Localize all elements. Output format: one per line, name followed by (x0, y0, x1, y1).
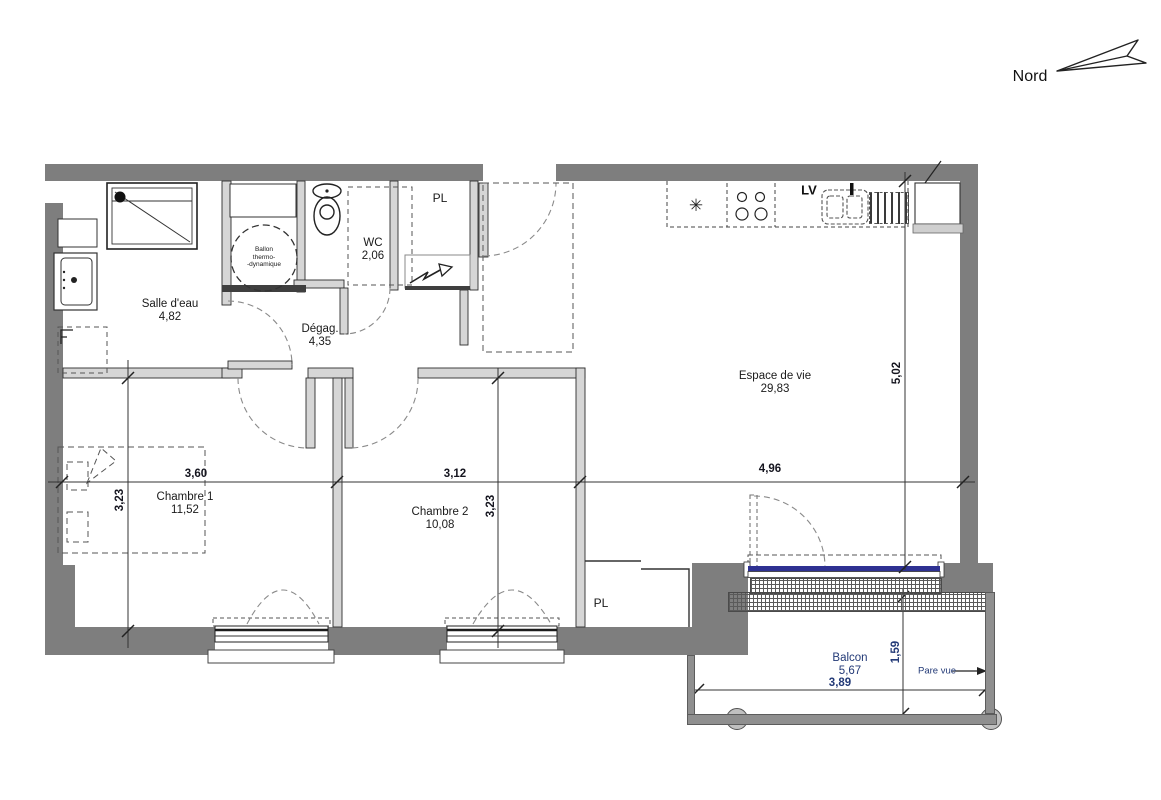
room-label-salle-deau: Salle d'eau 4,82 (142, 298, 199, 324)
window-chambre2 (440, 618, 564, 663)
window1-frame (215, 626, 328, 642)
dim-living-width: 4,96 (759, 463, 781, 475)
partition-bedrooms-top-2 (308, 368, 353, 378)
door-leaf-chambre1 (306, 378, 315, 448)
arc-entry-door (484, 183, 556, 256)
partition-heater-closet-right (297, 181, 305, 292)
door-leaf-salledeau (228, 361, 292, 369)
entry-box-bottom (405, 286, 470, 290)
wall-top-right (556, 164, 978, 181)
washing-machine-slot (58, 327, 107, 373)
room-name: Chambre 1 (157, 491, 214, 503)
room-label-balcon: Balcon 5,67 (832, 652, 867, 678)
kitchen-sink-icon (822, 183, 868, 224)
partition-bedrooms-top-1 (222, 368, 242, 378)
room-label-chambre1: Chambre 1 11,52 (157, 491, 214, 517)
room-area: 29,83 (739, 383, 811, 396)
window2-frame (447, 626, 557, 642)
water-heater-line3: -dynamique (247, 261, 281, 268)
door-leaves (228, 183, 488, 448)
room-area: 2,06 (362, 250, 384, 263)
balcony-edge-band (728, 592, 995, 612)
room-name: Chambre 2 (412, 506, 469, 518)
room-name: Balcon (832, 652, 867, 664)
partition-pl-right (470, 181, 478, 290)
balcony-bay-window (744, 555, 944, 578)
window2-sill (440, 650, 564, 663)
wall-niche-left (58, 219, 97, 247)
partition-salledeau-bottom (63, 368, 230, 378)
partition-bedrooms-top-3 (418, 368, 585, 378)
pare-vue-arrow (952, 667, 987, 675)
kitchen-drainer-icon (869, 192, 909, 224)
pare-vue-screen (985, 592, 995, 714)
dim-balcon-depth: 1,59 (890, 641, 902, 663)
hob-icon (736, 193, 767, 221)
room-area: 4,35 (301, 336, 338, 349)
arc-balcony-door (754, 496, 825, 567)
room-label-espace-de-vie: Espace de vie 29,83 (739, 370, 811, 396)
room-name: WC (363, 237, 382, 249)
door-leaf-wc (340, 288, 348, 334)
north-arrow-icon (1057, 40, 1146, 71)
dim-balcon-width: 3,89 (829, 677, 851, 689)
water-heater-line2: thermo- (253, 253, 275, 260)
window-chambre1 (208, 618, 334, 663)
partition-wc-right (390, 181, 398, 290)
north-label: Nord (1013, 68, 1048, 86)
arc-salledeau-door (228, 301, 292, 365)
partition-chambre1-chambre2 (333, 378, 342, 627)
fridge-icon: ✳ (689, 196, 703, 216)
toilet-icon (313, 184, 341, 235)
room-area: 4,82 (142, 311, 199, 324)
entry-zone-dashed (483, 183, 573, 352)
window1-sill (208, 650, 334, 663)
dim-chambre1-width: 3,60 (185, 468, 207, 480)
closet-hall-label: PL (433, 191, 448, 205)
room-area: 11,52 (157, 504, 214, 517)
wall-bottom-1 (45, 627, 215, 655)
room-name: Salle d'eau (142, 298, 199, 310)
arc-chambre1-door (238, 378, 308, 448)
dim-chambre1-depth: 3,23 (114, 489, 126, 511)
room-name: Dégag. (301, 323, 338, 335)
arc-chambre2-door (349, 378, 418, 448)
arc-wc-door (344, 288, 390, 334)
wall-bottom-2 (328, 627, 447, 655)
room-label-chambre2: Chambre 2 10,08 (412, 506, 469, 532)
dim-chambre2-width: 3,12 (444, 468, 466, 480)
door-swing-arcs (228, 183, 825, 624)
dim-living-depth: 5,02 (891, 362, 903, 384)
room-area: 10,08 (412, 519, 469, 532)
heater-closet-bottom-wall (222, 285, 306, 292)
washbasin-icon (54, 253, 97, 310)
dim-chambre2-depth: 3,23 (485, 495, 497, 517)
balcony-rail-left (687, 655, 695, 718)
pare-vue-label: Pare vue (918, 666, 956, 677)
wall-top-left (45, 164, 483, 181)
window2-dashed (445, 618, 559, 626)
wall-left-step (45, 565, 75, 627)
counter-return (913, 224, 963, 233)
water-heater-label: Ballon thermo- -dynamique (247, 246, 281, 269)
partition-chambre2-living (576, 368, 585, 627)
duct-niche (915, 183, 960, 224)
balcony-rail-bottom (687, 714, 997, 725)
window1-dashed (213, 618, 330, 626)
closet-bedroom-label: PL (594, 596, 609, 610)
dishwasher-label: LV (801, 183, 817, 198)
balcony-door-open-leaf (750, 495, 757, 567)
heater-shelf (230, 184, 296, 217)
room-name: Espace de vie (739, 370, 811, 382)
room-label-degagement: Dégag. 4,35 (301, 323, 338, 349)
sink-tap (850, 183, 854, 195)
door-leaf-chambre2 (345, 378, 353, 448)
water-heater-line1: Ballon (255, 246, 273, 253)
shower-icon (107, 183, 197, 249)
partition-entry (460, 290, 468, 345)
arc-window-chambre2 (473, 590, 551, 624)
wall-southeast-block (940, 563, 993, 592)
wc-dashed-zone (348, 187, 412, 285)
bay-dashed-outline (748, 555, 941, 567)
floor-plan: Nord Salle d'eau 4,82 WC 2,06 Dégag. 4,3… (0, 0, 1161, 800)
bay-glazing (748, 566, 940, 572)
closet-bedroom-outline (585, 561, 689, 627)
arc-window-chambre1 (247, 590, 319, 624)
room-label-wc: WC 2,06 (362, 237, 384, 263)
bay-frame (748, 572, 940, 578)
